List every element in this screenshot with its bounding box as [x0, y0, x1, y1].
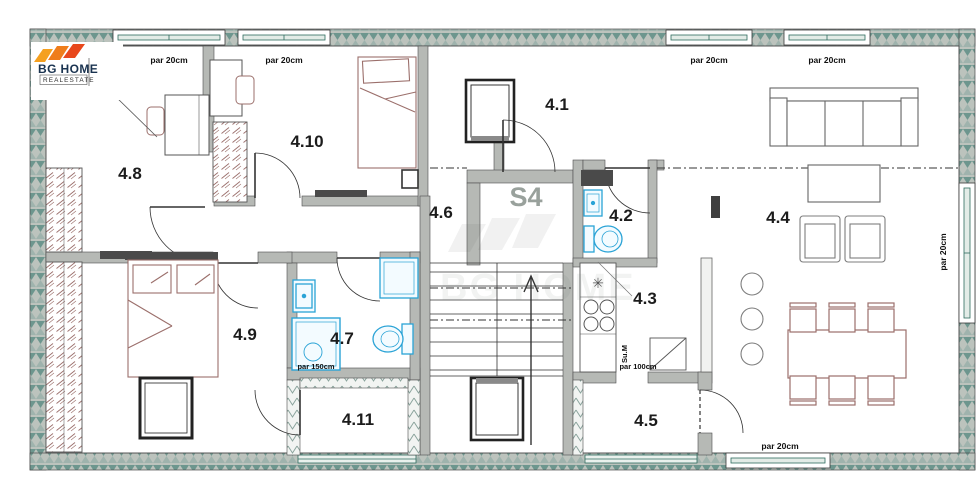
counter	[581, 170, 613, 186]
bathroom-4-7-fixtures	[292, 258, 418, 370]
parapet-label-right: par 20cm	[938, 233, 948, 271]
desk-chair	[147, 107, 164, 135]
room-label-4-3: 4.3	[633, 289, 657, 308]
elevator-bottom	[471, 378, 523, 440]
balcony-railing-right	[585, 455, 697, 463]
toilet	[373, 324, 413, 354]
desk-chair	[236, 76, 254, 104]
room-label-4-2: 4.2	[609, 206, 633, 225]
room-label-4-9: 4.9	[233, 325, 257, 344]
single-bed	[358, 57, 416, 168]
sink	[293, 280, 315, 312]
door-bath-4-7	[337, 258, 380, 301]
armchair-1	[800, 216, 840, 262]
tv	[711, 196, 720, 218]
parapet-label-bottom: par 20cm	[761, 441, 799, 451]
door-balcony-4-5	[700, 390, 743, 433]
bed-headboard	[125, 252, 218, 260]
dresser	[140, 378, 192, 438]
stairwell-label: S4	[509, 182, 542, 212]
elevator-top	[466, 80, 514, 142]
window-top-1	[113, 30, 225, 45]
parapet-label-top-3: par 20cm	[690, 55, 728, 65]
parapet-label-top-1: par 20cm	[150, 55, 188, 65]
shower-dimension-label: par 150cm	[297, 362, 334, 371]
balcony-railing-left	[298, 455, 416, 463]
room-label-4-6: 4.6	[429, 203, 453, 222]
watermark-text: BG HOME	[440, 267, 636, 309]
window-bottom	[726, 453, 830, 468]
window-top-4	[784, 30, 870, 45]
brand-logo: BG HOME REALESTATE	[31, 42, 123, 100]
armchair-2	[845, 216, 885, 262]
door-room-4-10	[255, 153, 300, 198]
room-label-4-11: 4.11	[342, 410, 374, 429]
radiator	[315, 190, 367, 197]
dining-table	[788, 330, 906, 378]
door-room-4-9	[213, 263, 258, 308]
window-top-3	[666, 30, 752, 45]
window-top-2	[238, 30, 330, 45]
parapet-label-top-4: par 20cm	[808, 55, 846, 65]
sink	[584, 190, 602, 216]
bar-stools	[741, 273, 763, 365]
room-label-4-8: 4.8	[118, 164, 142, 183]
logo-subtitle: REALESTATE	[43, 77, 95, 84]
window-right	[959, 183, 975, 323]
room-label-4-5: 4.5	[634, 411, 658, 430]
living-room-4-4	[741, 88, 918, 405]
coffee-table	[808, 165, 880, 202]
room-label-4-7: 4.7	[330, 329, 354, 348]
sofa	[770, 88, 918, 146]
bar-counter	[701, 258, 712, 372]
room-4-9-furniture	[46, 252, 218, 452]
toilet	[584, 226, 622, 252]
utility-label: Su.M	[620, 345, 629, 363]
dining-set	[788, 303, 906, 405]
wardrobe	[213, 122, 247, 202]
double-bed	[128, 260, 218, 377]
floorplan-page: ✳	[0, 0, 980, 497]
room-label-4-4: 4.4	[766, 208, 790, 227]
washing-machine	[380, 258, 418, 298]
room-4-10-furniture	[210, 57, 418, 202]
room-label-4-1: 4.1	[545, 95, 569, 114]
nightstand	[402, 170, 418, 188]
room-label-4-10: 4.10	[290, 132, 323, 151]
parapet-label-top-2: par 20cm	[265, 55, 303, 65]
floorplan-canvas: ✳	[0, 0, 980, 497]
desk	[165, 95, 209, 155]
